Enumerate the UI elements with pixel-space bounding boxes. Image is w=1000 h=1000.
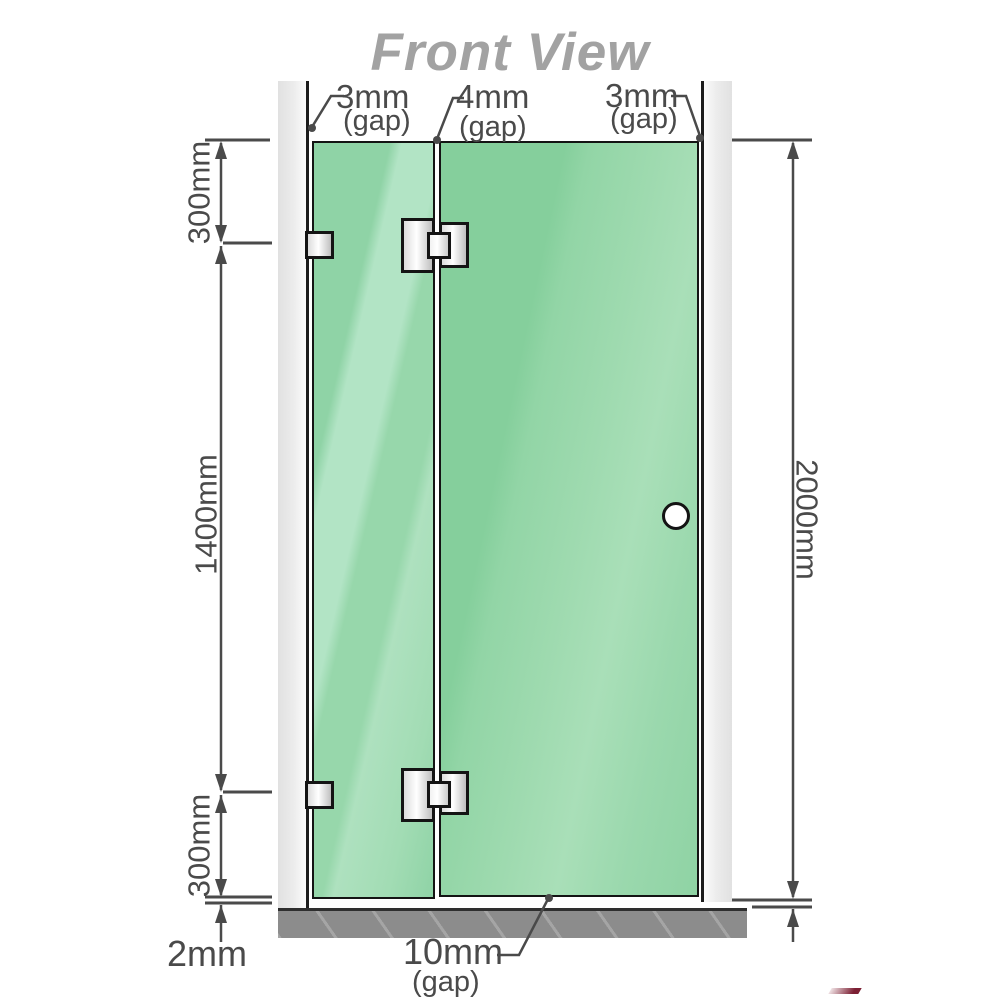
- floor-base: [278, 908, 747, 938]
- hinge-top-knuckle: [427, 232, 451, 259]
- door-bottom-gap-value-10mm: 10mm: [403, 934, 503, 970]
- door-bottom-gap-unit: (gap): [412, 968, 480, 997]
- wall-bracket-top-icon: [305, 231, 334, 259]
- floor-gap-label-2mm: 2mm: [167, 936, 247, 972]
- door-glass-panel: [439, 141, 699, 897]
- dim-label-top-300mm: 300mm: [184, 133, 215, 253]
- shower-screen-front-view-diagram: Front View: [0, 0, 1000, 1000]
- dim-label-total-2000mm: 2000mm: [792, 450, 823, 590]
- dim-label-middle-1400mm: 1400mm: [191, 445, 222, 585]
- logo-artifact: [828, 988, 861, 994]
- door-knob: [662, 502, 690, 530]
- wall-bracket-bottom-icon: [305, 781, 334, 809]
- dim-label-bottom-300mm: 300mm: [184, 786, 215, 906]
- wall-right: [701, 81, 732, 902]
- gap-label-top-mid-value: 4mm: [456, 80, 529, 113]
- gap-label-top-right-unit: (gap): [610, 105, 678, 134]
- diagram-title: Front View: [340, 22, 680, 83]
- gap-label-top-left-unit: (gap): [343, 107, 411, 136]
- hinge-bottom-knuckle: [427, 781, 451, 808]
- gap-label-top-mid-unit: (gap): [459, 113, 527, 142]
